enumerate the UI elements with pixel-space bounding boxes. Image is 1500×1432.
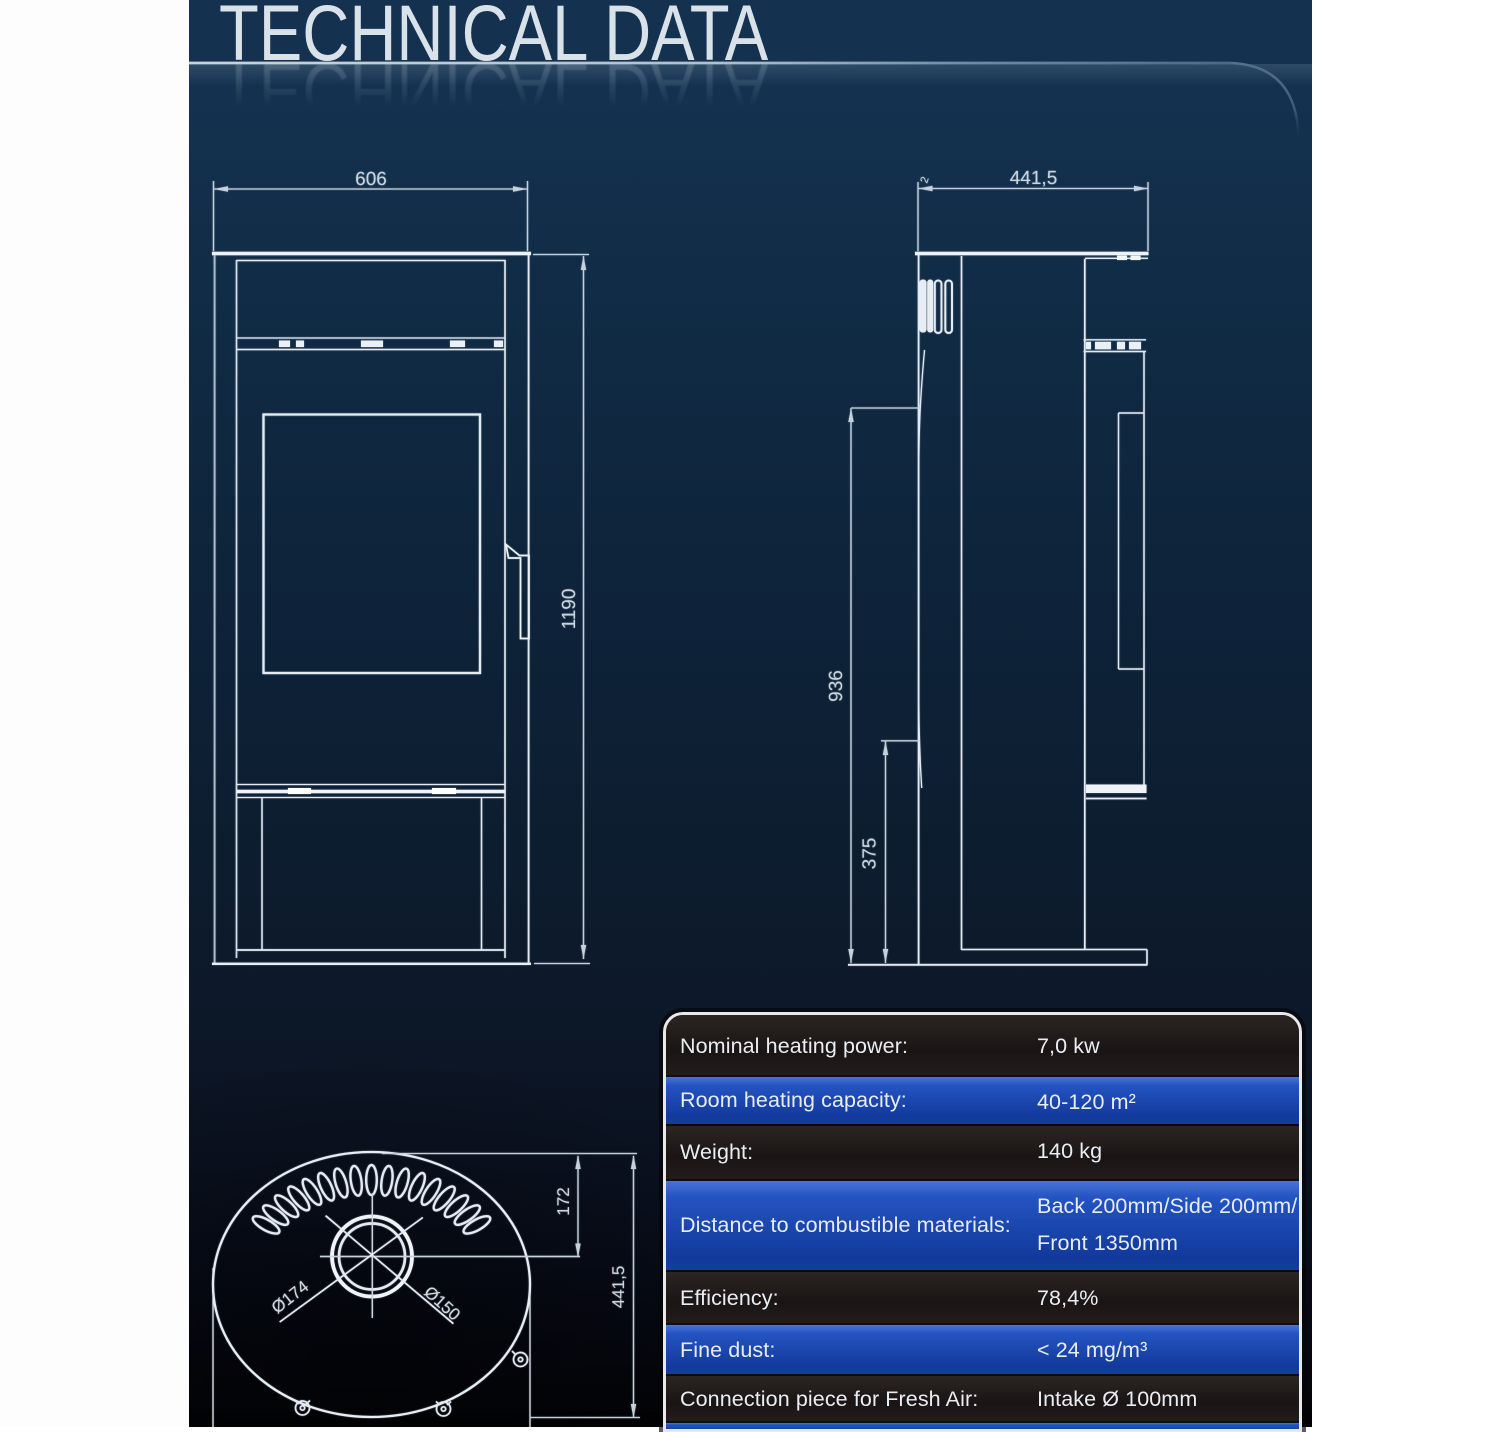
svg-text:2: 2 [918, 175, 931, 185]
svg-text:1190: 1190 [559, 589, 580, 630]
svg-text:441,5: 441,5 [609, 1266, 628, 1309]
svg-text:606: 606 [355, 169, 387, 190]
svg-text:375: 375 [860, 838, 881, 870]
svg-text:936: 936 [826, 670, 847, 702]
svg-text:172: 172 [554, 1187, 573, 1215]
svg-text:Ø150: Ø150 [420, 1282, 464, 1324]
svg-text:441,5: 441,5 [1010, 168, 1058, 189]
svg-text:Ø174: Ø174 [268, 1277, 312, 1318]
